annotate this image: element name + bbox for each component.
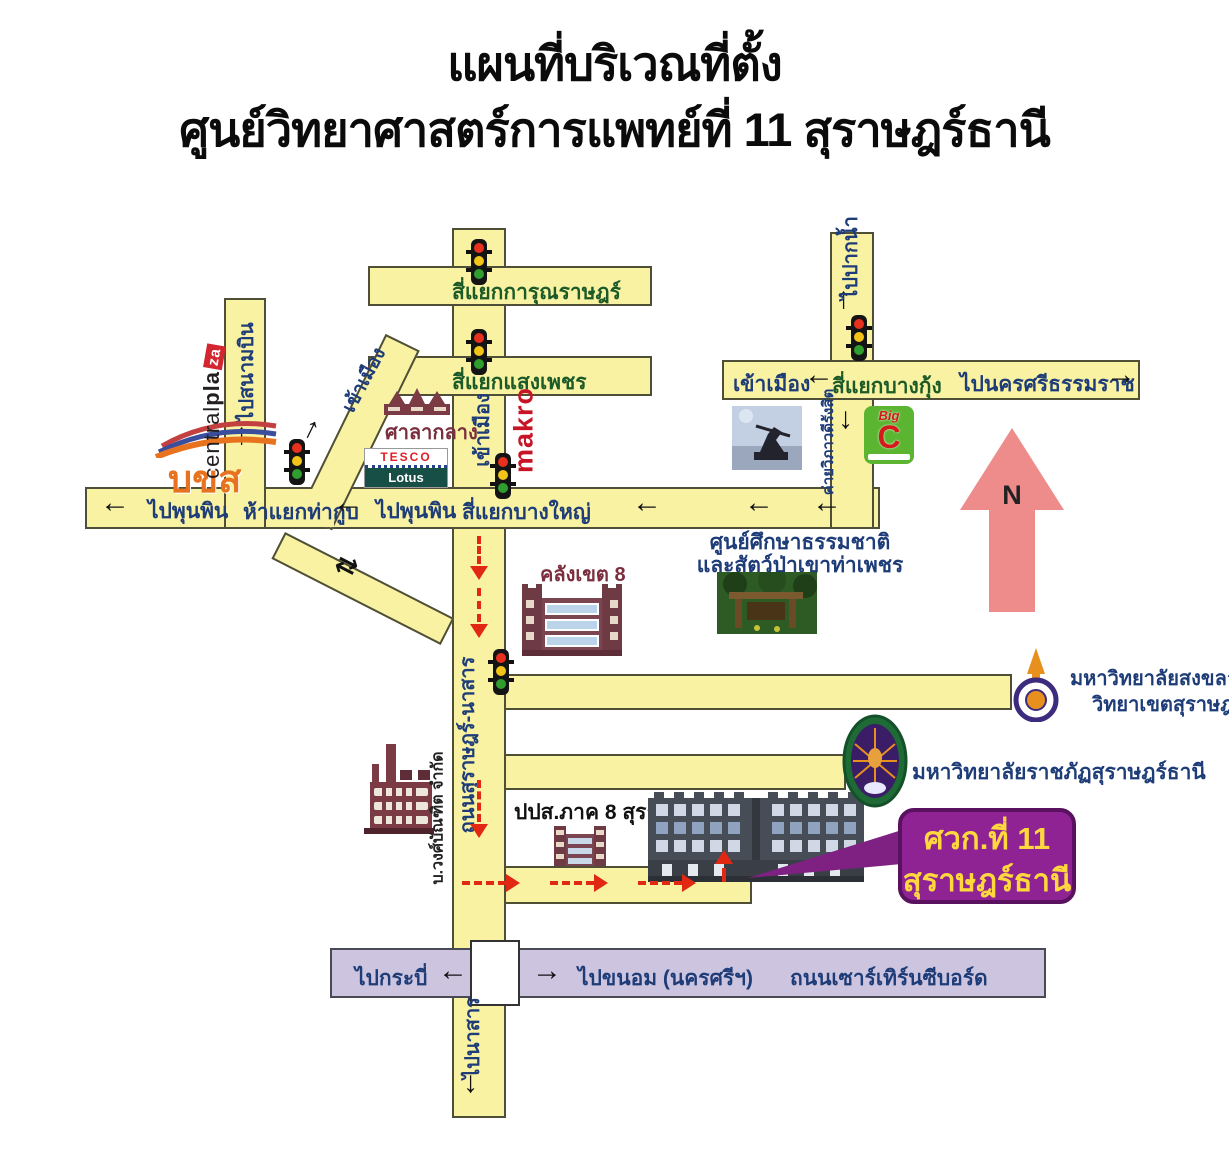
direction-label-airport: ไปสนามบิน [230, 322, 262, 421]
nature-center-photo [717, 572, 817, 634]
page-title-line2: ศูนย์วิทยาศาสตร์การแพทย์ที่ 11 สุราษฎร์ธ… [0, 92, 1229, 167]
monument-photo [732, 406, 802, 470]
route-arrow [477, 536, 481, 564]
destination-callout: ศวก.ที่ 11 สุราษฎร์ธานี [898, 808, 1076, 904]
route-arrow [722, 868, 726, 882]
direction-label-paknam: ไปปากน้ำ [834, 216, 866, 300]
route-arrow [462, 881, 506, 885]
tesco-lotus-logo: TESCO Lotus [364, 448, 448, 488]
traffic-light-icon [282, 438, 312, 488]
big-c-logo: Big C [864, 406, 914, 464]
psu-logo [1008, 648, 1064, 722]
callout-pointer [740, 812, 910, 892]
rajabhat-label: มหาวิทยาลัยราชภัฏสุราษฎร์ธานี [912, 756, 1206, 789]
left-arrow-icon: ← [804, 360, 834, 390]
north-label: N [960, 480, 1064, 511]
traffic-light-icon [464, 328, 494, 378]
road-psu-branch [504, 674, 1012, 710]
lotus-text: Lotus [365, 468, 447, 487]
intersection-label-bangyai: สี่แยกบางใหญ่ [462, 496, 591, 529]
left-arrow-icon: ← [744, 488, 774, 518]
traffic-light-icon [486, 648, 516, 698]
city-hall-label: ศาลากลาง [385, 416, 478, 448]
left-arrow-icon: ← [632, 488, 662, 518]
traffic-light-icon [464, 238, 494, 288]
tesco-text: TESCO [365, 449, 447, 468]
left-arrow-icon: ← [438, 956, 468, 986]
big-c-text-c: C [864, 422, 914, 452]
right-arrow-icon: → [532, 956, 562, 986]
road-slip-diagonal [271, 532, 454, 645]
page-title-line1: แผนที่บริเวณที่ตั้ง [0, 26, 1229, 101]
route-arrowhead [594, 874, 608, 892]
rajabhat-logo [842, 714, 908, 808]
oncb-building-icon [554, 822, 606, 868]
direction-label-nasan: ไปนาสาร [456, 997, 488, 1079]
north-arrow: N [960, 428, 1064, 612]
intersection-label-bangkung: สี่แยกบางกุ้ง [832, 370, 942, 403]
down-arrow-icon: ↓ [838, 404, 853, 434]
right-arrow-icon: → [1106, 360, 1136, 390]
road-rajabhat-branch [504, 754, 846, 790]
map-page: แผนที่บริเวณที่ตั้ง ศูนย์วิทยาศาสตร์การแ… [0, 0, 1229, 1155]
route-arrow [638, 881, 682, 885]
traffic-light-icon [488, 452, 518, 502]
camp-label: ค่ายวิภาวดีรังสิต [816, 389, 840, 495]
direction-label-krabi: ไปกระบี่ [355, 962, 428, 995]
left-arrow-icon: ← [333, 488, 363, 518]
route-arrowhead [682, 874, 696, 892]
road-name-seaboard: ถนนเซาร์เทิร์นซีบอร์ด [790, 962, 988, 995]
route-arrow [477, 780, 481, 822]
callout-line1: ศวก.ที่ 11 [902, 818, 1072, 860]
junction-patch [454, 868, 504, 902]
route-arrowhead [470, 824, 488, 838]
route-arrowhead [470, 624, 488, 638]
route-arrow [477, 588, 481, 622]
centralplaza-text-bold: pla [199, 371, 224, 406]
traffic-light-icon [844, 314, 874, 364]
left-arrow-icon: ← [100, 488, 130, 518]
centralplaza-za-badge: za [203, 344, 226, 371]
wongbandit-label: บ.วงศ์บัณฑิต จำกัด [426, 751, 451, 884]
route-arrowhead [470, 566, 488, 580]
route-arrow [550, 881, 594, 885]
treasury-building-icon [522, 580, 622, 656]
direction-label-khanom: ไปขนอม (นครศรีฯ) [578, 962, 753, 995]
direction-label-phunphin-near: ไปพุนพิน [376, 495, 456, 528]
callout-line2: สุราษฎร์ธานี [902, 860, 1072, 902]
centralplaza-logo: centralplaza [199, 345, 225, 479]
city-hall-icon [382, 388, 452, 416]
centralplaza-text: central [199, 406, 224, 479]
route-arrowhead [506, 874, 520, 892]
direction-label-into-town-right: เข้าเมือง [733, 368, 810, 401]
psu-label-line2: วิทยาเขตสุราษฎร์ธานี [1092, 688, 1229, 720]
north-arrow-shaft [989, 508, 1035, 612]
route-arrowhead [715, 850, 733, 864]
